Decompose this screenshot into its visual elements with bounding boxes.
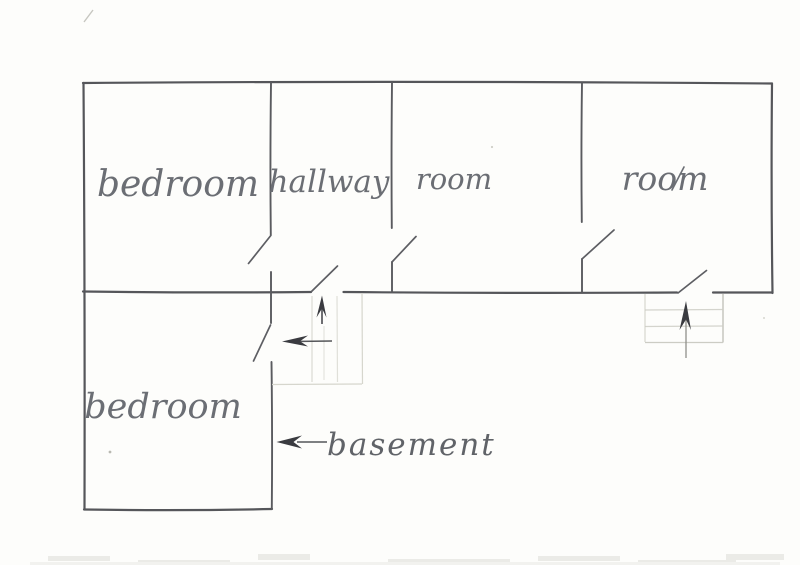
wall-lower-bedroom-bottom <box>84 509 272 510</box>
door-swing-lower-bedroom <box>254 325 271 361</box>
door-swing-hallway-room1 <box>392 237 416 263</box>
door-swing-hallway-basement-stairs <box>312 266 338 292</box>
pencil-speck-3 <box>763 317 765 319</box>
basement-label: basement <box>327 427 496 463</box>
wall-right-outer <box>772 84 773 294</box>
wall-left-outer <box>84 83 85 509</box>
scan-artifacts-group <box>30 10 784 565</box>
room-label-bedroom-lower: bedroom <box>84 387 242 427</box>
room-label-room-1: room <box>416 162 492 196</box>
room-label-room-2: room <box>622 159 709 198</box>
room-label-hallway: hallway <box>269 164 390 200</box>
stairs-right-tread-2 <box>645 326 723 327</box>
door-swing-room1-room2 <box>582 230 614 259</box>
pencil-speck-top-left <box>84 10 93 22</box>
scanned-floor-plan-sheet: bedroom hallway room room bedroom baseme… <box>0 0 800 565</box>
wall-middle-left-segment <box>83 292 311 293</box>
arrows-group <box>277 296 692 449</box>
labels-group: bedroom hallway room room bedroom baseme… <box>84 159 708 463</box>
stairs-basement-bottom-edge <box>272 384 362 385</box>
stairs-basement-stairwell <box>272 293 363 385</box>
wall-middle-center-segment <box>344 292 678 293</box>
scanner-edge-band <box>30 554 784 565</box>
stairs-basement-tread-2 <box>337 296 338 382</box>
pencil-speck-2 <box>491 146 493 148</box>
divider-room1-room2-upper <box>581 83 582 222</box>
door-swing-bedroom-hallway <box>249 236 271 264</box>
divider-bedroom-hallway-upper <box>270 83 271 235</box>
stairs-basement-right-edge <box>362 293 363 384</box>
room-label-bedroom-top: bedroom <box>97 164 259 205</box>
floor-plan-drawing: bedroom hallway room room bedroom baseme… <box>0 0 800 565</box>
pencil-speck-1 <box>109 451 112 454</box>
wall-top-outer <box>83 82 772 84</box>
door-swing-room2-exterior <box>678 271 707 294</box>
